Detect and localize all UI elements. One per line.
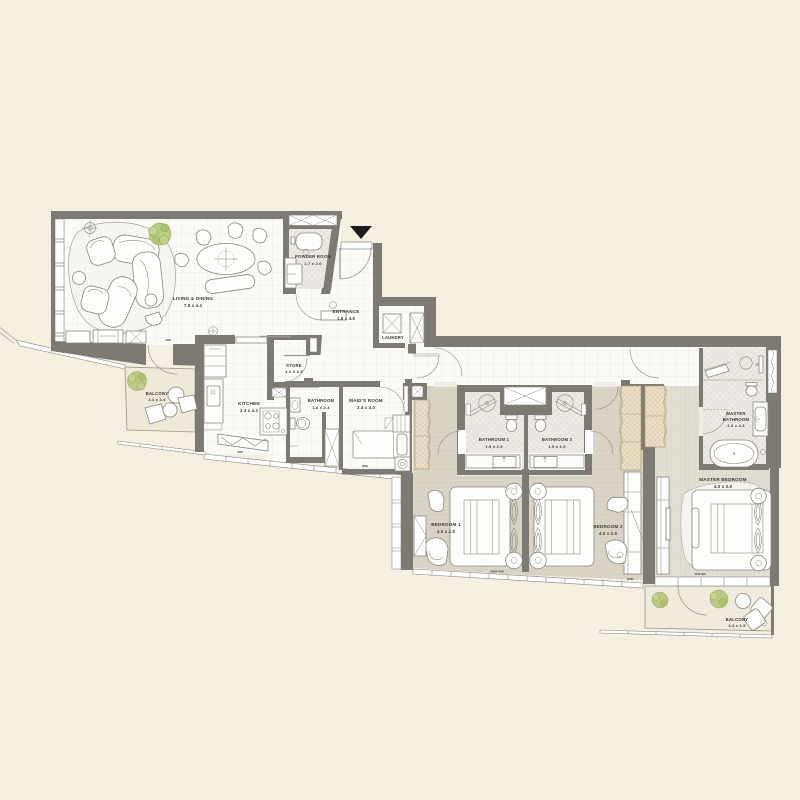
svg-text:LAUNDRY: LAUNDRY — [382, 335, 404, 340]
svg-text:1.9 x 2.9: 1.9 x 2.9 — [548, 444, 566, 449]
svg-text:4.0 x 2.9: 4.0 x 2.9 — [599, 531, 618, 536]
svg-text:2.3 x 4.3: 2.3 x 4.3 — [727, 423, 745, 428]
svg-text:1.9 x 2.9: 1.9 x 2.9 — [485, 444, 503, 449]
svg-text:2.3 x 4.3: 2.3 x 4.3 — [240, 408, 259, 413]
svg-text:BALCONY: BALCONY — [726, 617, 749, 622]
svg-text:BEDROOM 1: BEDROOM 1 — [431, 522, 461, 527]
svg-text:4150 600: 4150 600 — [695, 572, 706, 576]
svg-text:MASTER BEDROOM: MASTER BEDROOM — [699, 477, 746, 482]
svg-text:1.8 x 4.8: 1.8 x 4.8 — [337, 316, 356, 321]
svg-text:POWDER ROOM: POWDER ROOM — [295, 254, 331, 259]
svg-text:2.4 x 3.0: 2.4 x 3.0 — [357, 405, 376, 410]
svg-text:MASTER: MASTER — [726, 411, 746, 416]
svg-text:BATHROOM: BATHROOM — [308, 398, 335, 403]
svg-text:BATHROOM 1: BATHROOM 1 — [479, 437, 510, 442]
svg-text:7.9 x 4.4: 7.9 x 4.4 — [184, 303, 203, 308]
svg-text:BATHROOM 2: BATHROOM 2 — [542, 437, 573, 442]
svg-text:4.0 x 2.8: 4.0 x 2.8 — [437, 529, 456, 534]
svg-text:1.2 X 1.6: 1.2 X 1.6 — [285, 369, 303, 374]
svg-text:STORE: STORE — [286, 363, 302, 368]
svg-text:MAID'S ROOM: MAID'S ROOM — [349, 398, 383, 403]
svg-text:4150: 4150 — [165, 338, 171, 342]
svg-text:BATHROOM: BATHROOM — [723, 417, 750, 422]
svg-text:LIVING & DINING: LIVING & DINING — [173, 296, 213, 301]
svg-text:4.3 x 1.5: 4.3 x 1.5 — [728, 623, 746, 628]
svg-text:BEDROOM 2: BEDROOM 2 — [593, 524, 623, 529]
svg-text:1.7 x 2.0: 1.7 x 2.0 — [304, 261, 322, 266]
svg-text:2.4 x 2.4: 2.4 x 2.4 — [148, 397, 166, 402]
svg-text:41500: 41500 — [626, 577, 634, 581]
svg-text:2600: 2600 — [362, 464, 368, 468]
svg-text:BALCONY: BALCONY — [146, 391, 169, 396]
svg-text:4150: 4150 — [237, 450, 243, 454]
svg-text:1.6 x 2.4: 1.6 x 2.4 — [312, 405, 330, 410]
svg-text:41500 4150: 41500 4150 — [490, 570, 504, 574]
svg-text:ENTRANCE: ENTRANCE — [332, 309, 359, 314]
svg-text:KITCHEN: KITCHEN — [238, 401, 260, 406]
svg-text:4.0 x 3.9: 4.0 x 3.9 — [714, 484, 733, 489]
